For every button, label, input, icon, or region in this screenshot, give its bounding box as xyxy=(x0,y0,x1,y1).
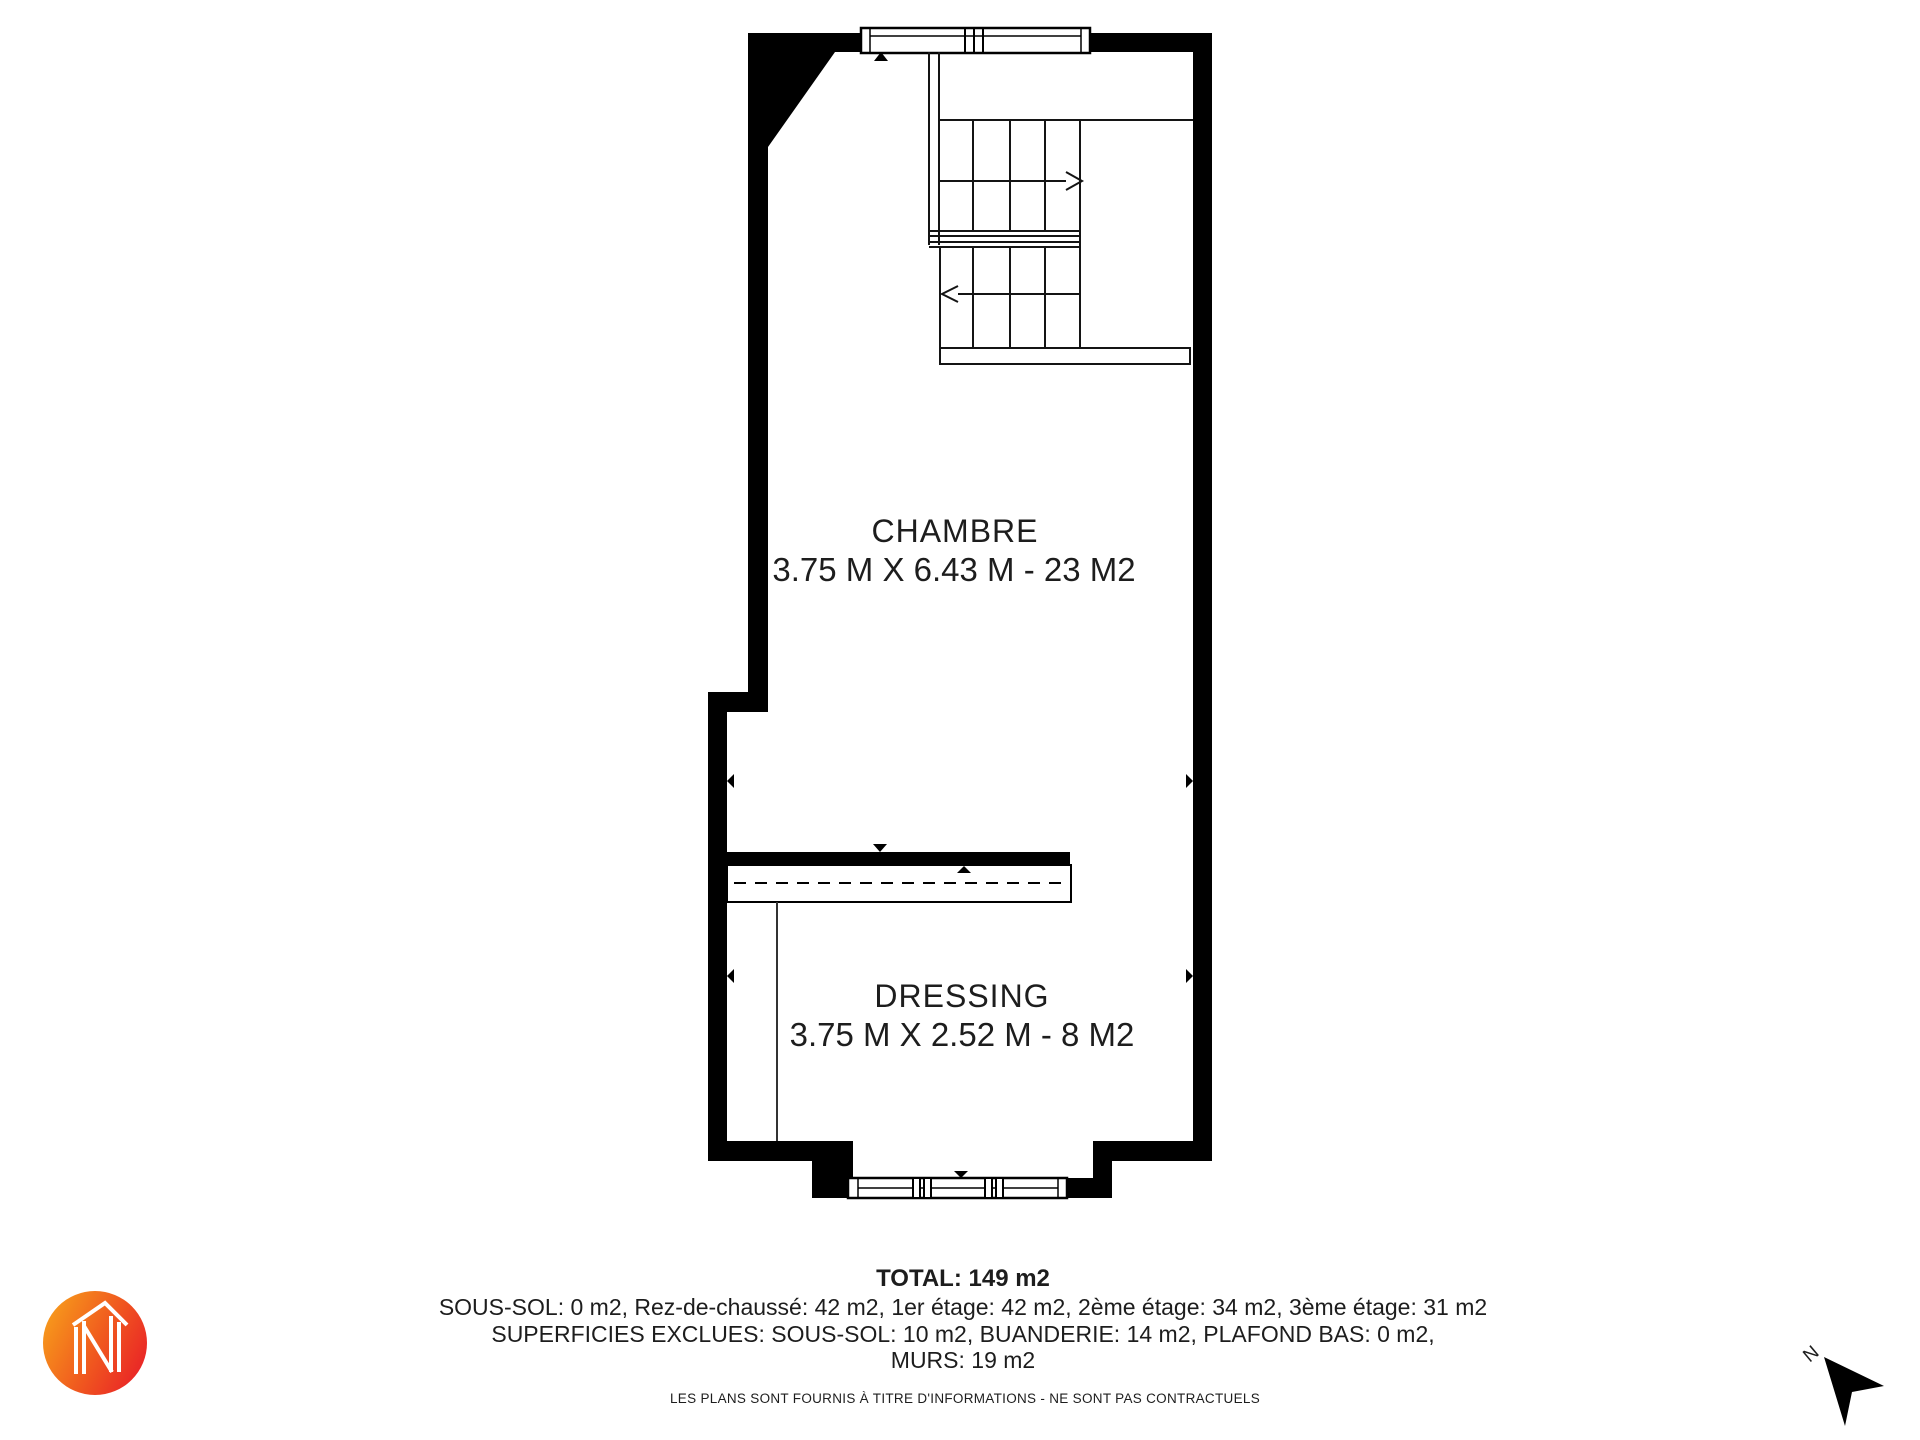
wall-partition-dressing xyxy=(727,852,1070,865)
floor-plan-canvas: CHAMBRE 3.75 M X 6.43 M - 23 M2 DRESSING… xyxy=(0,0,1920,1440)
room-name-chambre: CHAMBRE xyxy=(871,513,1038,549)
wall-bay-right-block xyxy=(1067,1161,1112,1198)
north-arrow-icon xyxy=(1824,1357,1884,1426)
room-dims-dressing: 3.75 M X 2.52 M - 8 M2 xyxy=(790,1016,1135,1053)
wall-left-outline xyxy=(708,33,862,1161)
disclaimer-text: LES PLANS SONT FOURNIS À TITRE D'INFORMA… xyxy=(670,1391,1260,1406)
stair-landing-strip xyxy=(940,348,1190,364)
marker-right-wall-upper-icon xyxy=(1186,774,1193,788)
summary-total: TOTAL: 149 m2 xyxy=(876,1265,1050,1292)
summary-walls: MURS: 19 m2 xyxy=(891,1347,1035,1373)
window-top xyxy=(861,28,1090,53)
room-name-dressing: DRESSING xyxy=(874,978,1049,1014)
window-bottom xyxy=(848,1178,1067,1198)
agency-logo xyxy=(43,1291,147,1395)
floor-plan-page: CHAMBRE 3.75 M X 6.43 M - 23 M2 DRESSING… xyxy=(0,0,1920,1440)
marker-partition-top-icon xyxy=(873,844,887,852)
room-labels: CHAMBRE 3.75 M X 6.43 M - 23 M2 DRESSING… xyxy=(772,513,1135,1053)
wall-right-outline xyxy=(1088,33,1212,1161)
marker-left-wall-upper-icon xyxy=(727,774,734,788)
north-label: N xyxy=(1799,1342,1823,1367)
room-dims-chambre: 3.75 M X 6.43 M - 23 M2 xyxy=(772,551,1135,588)
summary-floors: SOUS-SOL: 0 m2, Rez-de-chaussé: 42 m2, 1… xyxy=(439,1294,1487,1320)
north-compass: N xyxy=(1799,1342,1884,1426)
staircase xyxy=(929,52,1193,364)
marker-right-wall-lower-icon xyxy=(1186,969,1193,983)
summary-block: TOTAL: 149 m2 SOUS-SOL: 0 m2, Rez-de-cha… xyxy=(439,1265,1487,1406)
summary-excluded: SUPERFICIES EXCLUES: SOUS-SOL: 10 m2, BU… xyxy=(491,1321,1434,1347)
marker-left-wall-lower-icon xyxy=(727,969,734,983)
dressing-door xyxy=(727,865,1071,902)
